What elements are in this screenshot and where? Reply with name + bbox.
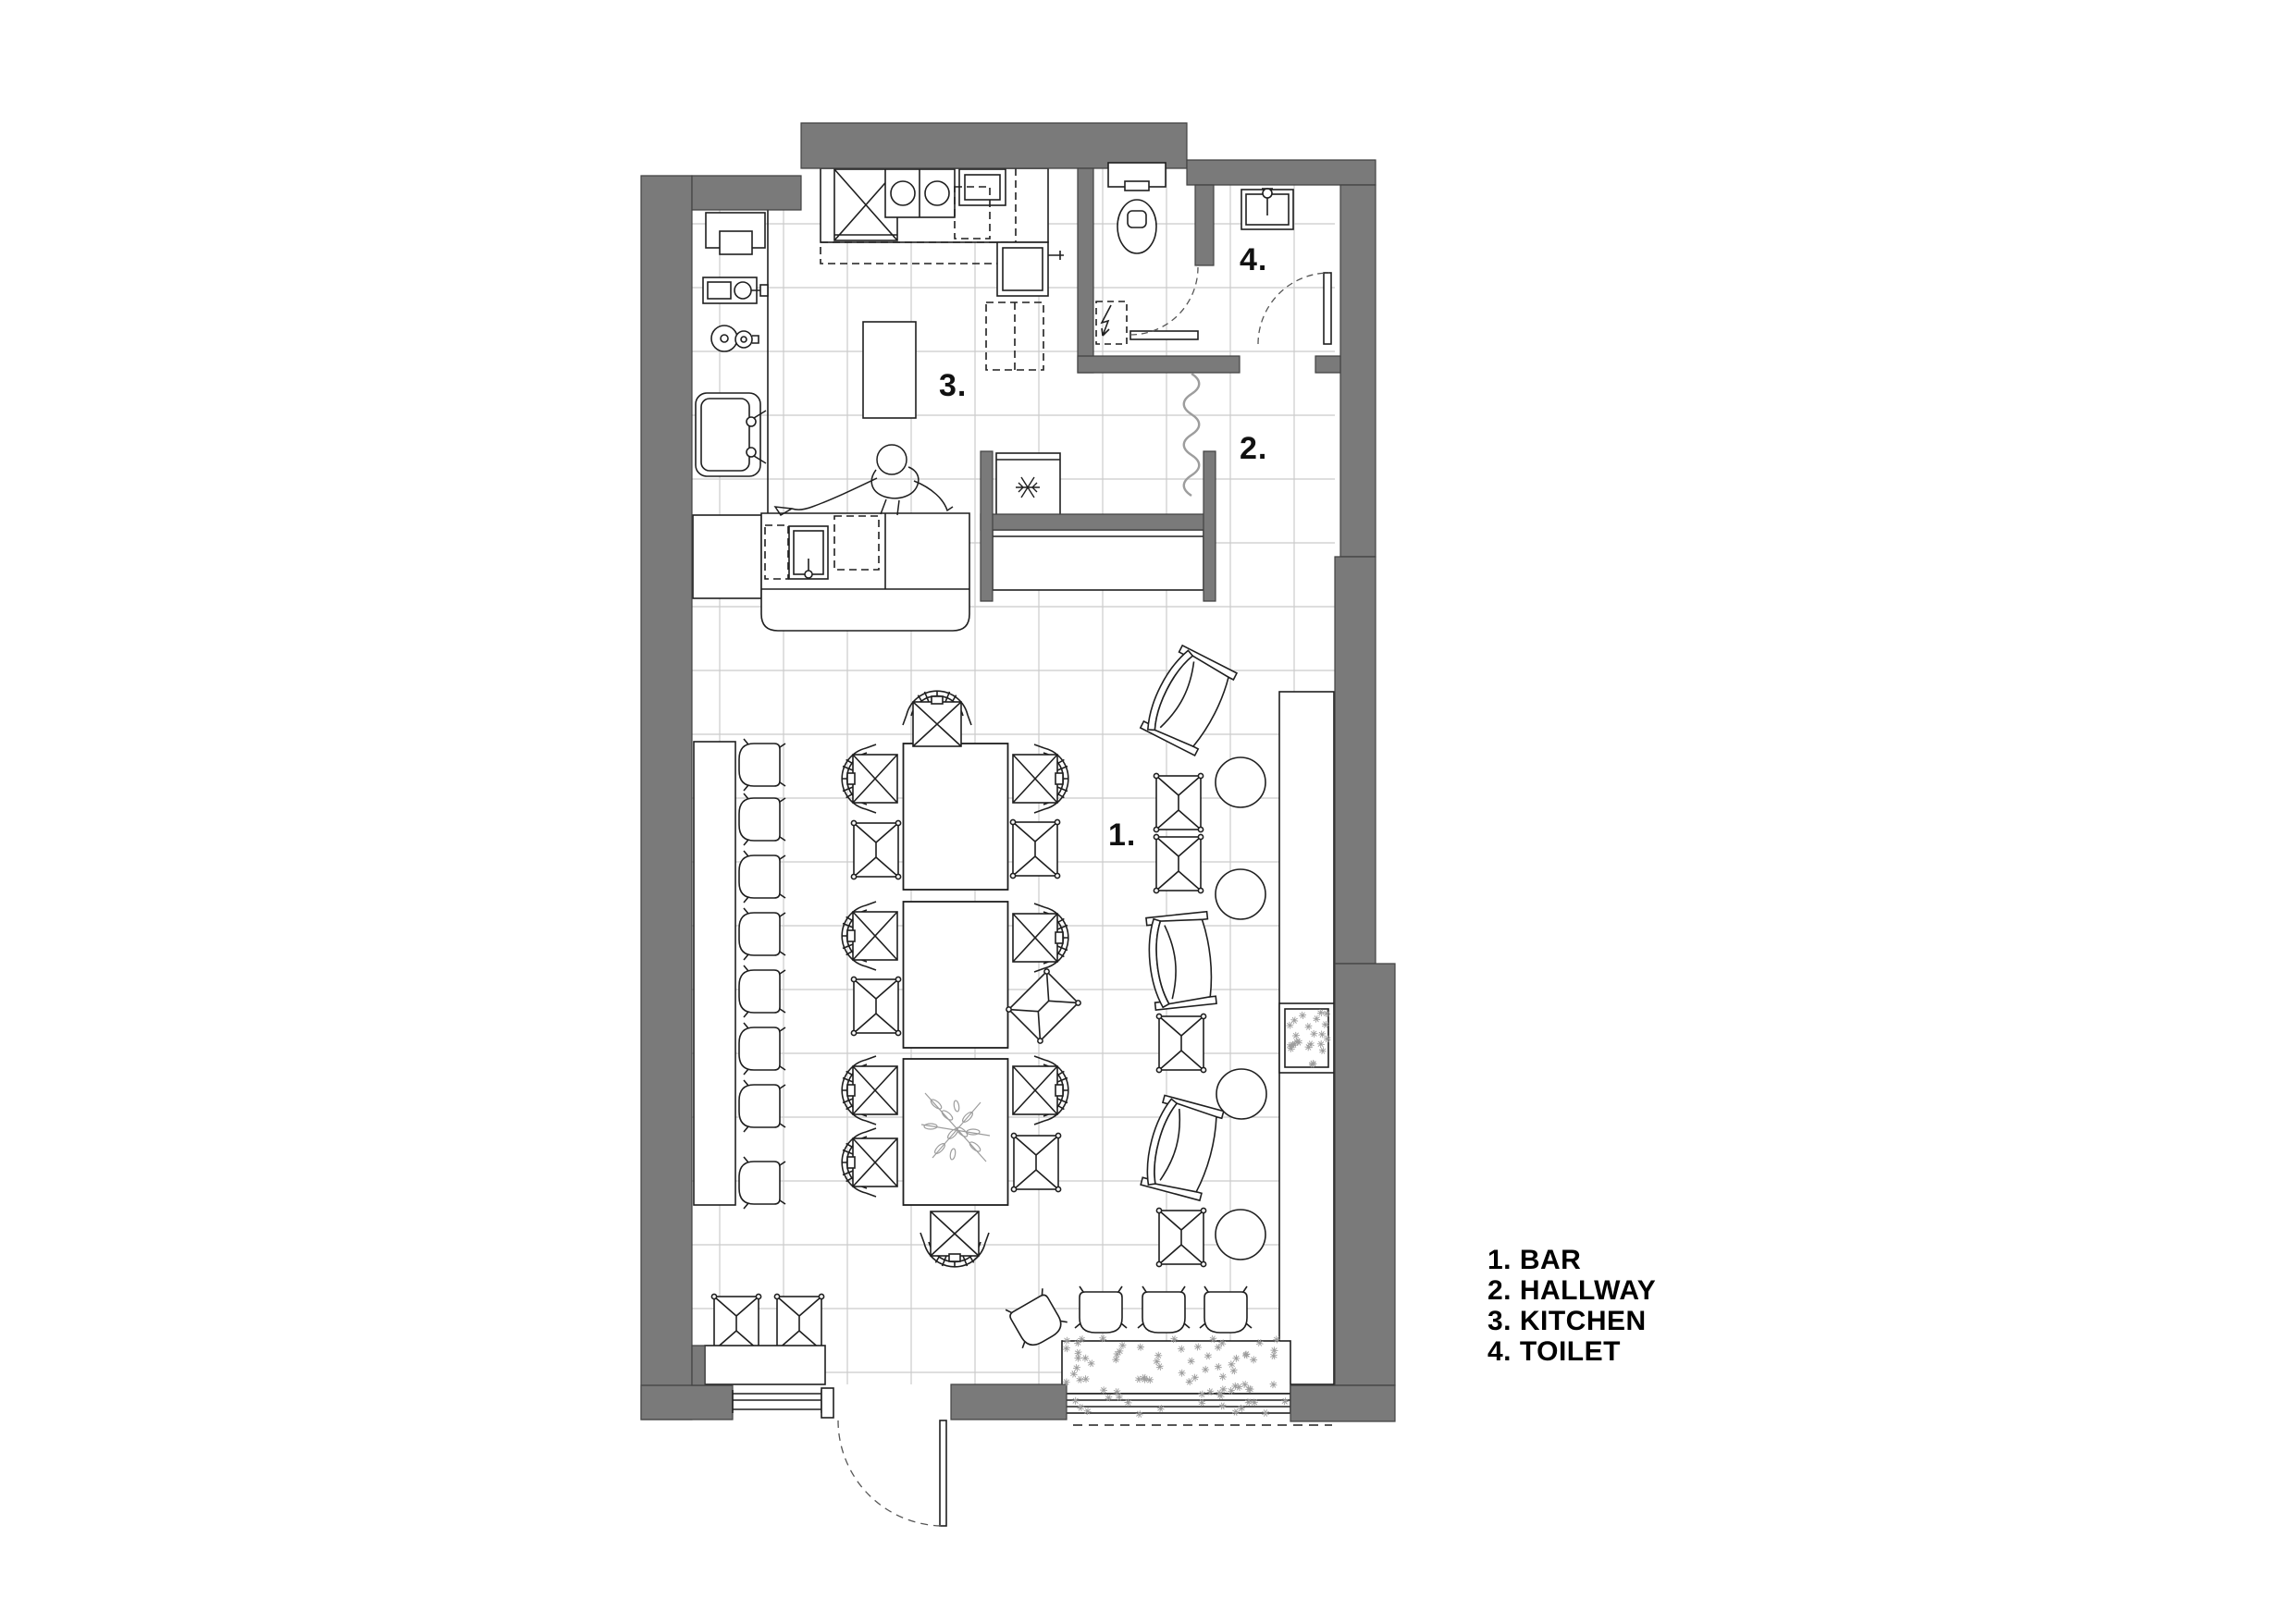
low-shelf xyxy=(705,1346,825,1384)
chair xyxy=(739,739,785,791)
chair xyxy=(739,908,785,960)
stool xyxy=(774,1294,823,1352)
floor-plan-svg xyxy=(0,0,2296,1623)
rtable xyxy=(1216,1069,1266,1119)
room-label-hallway: 2. xyxy=(1240,431,1267,467)
legend-item-kitchen: 3. KITCHEN xyxy=(1487,1306,1656,1336)
hall-wardrobe xyxy=(993,530,1204,590)
stool xyxy=(851,820,900,879)
chair xyxy=(1138,1286,1190,1333)
legend-item-bar: 1. BAR xyxy=(1487,1245,1656,1275)
chair xyxy=(739,1157,785,1209)
rtable xyxy=(1216,869,1265,919)
legend-item-toilet: 4. TOILET xyxy=(1487,1336,1656,1367)
counter-cabinet xyxy=(693,515,761,598)
chair xyxy=(1200,1286,1252,1333)
dtable xyxy=(904,902,1008,1048)
rtable xyxy=(1216,757,1265,807)
chair xyxy=(739,793,785,845)
room-label-kitchen: 3. xyxy=(939,368,967,404)
dtable xyxy=(904,744,1008,890)
hallway-fixtures xyxy=(993,530,1204,590)
toilet-sink xyxy=(1241,189,1293,229)
kitchen-island xyxy=(863,322,916,418)
stool xyxy=(1010,819,1059,878)
stool xyxy=(711,1294,760,1352)
chair xyxy=(739,1080,785,1132)
legend-item-hallway: 2. HALLWAY xyxy=(1487,1275,1656,1306)
kitchen-sink-large xyxy=(696,393,766,476)
double-sink-top xyxy=(885,169,955,217)
shelf-unit xyxy=(706,213,765,254)
legend: 1. BAR 2. HALLWAY 3. KITCHEN 4. TOILET xyxy=(1487,1245,1656,1367)
stool xyxy=(1156,1014,1205,1072)
chair xyxy=(739,1023,785,1075)
freezer-unit xyxy=(996,453,1060,515)
room-label-bar: 1. xyxy=(1108,818,1136,854)
storefront-block xyxy=(951,1384,1067,1420)
stool xyxy=(1156,1208,1205,1266)
stool xyxy=(851,977,900,1035)
chair xyxy=(739,965,785,1017)
wall-bench xyxy=(694,742,735,1205)
chair xyxy=(739,851,785,903)
stool xyxy=(1011,1133,1060,1191)
stool xyxy=(1154,773,1203,831)
stool xyxy=(1154,834,1203,892)
rtable xyxy=(1216,1210,1265,1260)
chair xyxy=(1075,1286,1127,1333)
service-counter xyxy=(761,513,969,631)
room-label-toilet: 4. xyxy=(1240,242,1267,278)
floor-plan xyxy=(0,0,2296,1623)
